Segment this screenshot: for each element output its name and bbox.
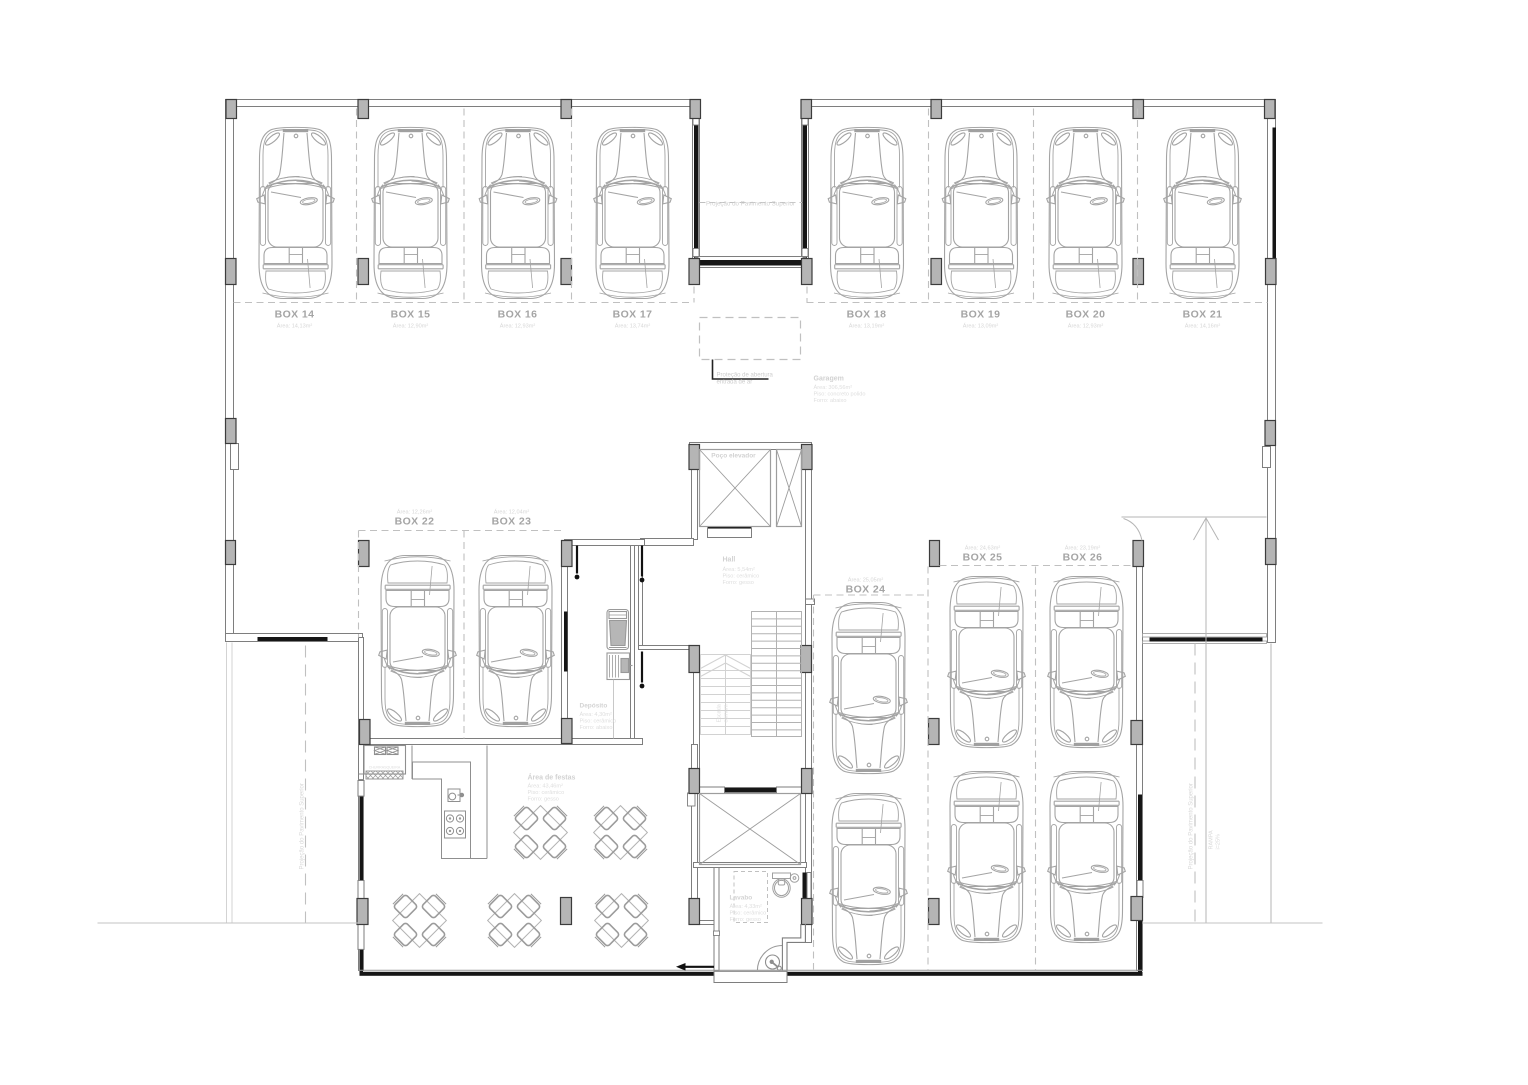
svg-text:Área: 14,16m²: Área: 14,16m² (1185, 323, 1221, 330)
svg-text:Garagem: Garagem (814, 376, 844, 383)
svg-text:Piso: cerâmico: Piso: cerâmico (730, 911, 767, 917)
svg-text:Área: 4,33m²: Área: 4,33m² (730, 903, 762, 910)
svg-text:BOX 19: BOX 19 (961, 309, 1001, 321)
svg-text:Proteção de abertura: Proteção de abertura (717, 373, 774, 379)
svg-text:Piso: cerâmico: Piso: cerâmico (723, 574, 760, 580)
svg-text:BOX 14: BOX 14 (275, 309, 315, 321)
svg-text:BOX 22: BOX 22 (395, 516, 435, 528)
svg-text:Forro: gesso: Forro: gesso (730, 917, 761, 923)
svg-text:Projeção do Pavimento Superior: Projeção do Pavimento Superior (1189, 783, 1195, 869)
svg-text:Área: 12,04m²: Área: 12,04m² (494, 509, 530, 516)
svg-text:Poço elevador: Poço elevador (711, 453, 756, 460)
svg-text:BOX 17: BOX 17 (613, 309, 653, 321)
svg-text:Forro: gesso: Forro: gesso (723, 580, 754, 586)
svg-text:Área de festas: Área de festas (528, 773, 576, 782)
svg-text:BOX 20: BOX 20 (1066, 309, 1106, 321)
svg-text:RAMPA: RAMPA (1209, 830, 1215, 849)
svg-text:Área: 13,74m²: Área: 13,74m² (615, 323, 651, 330)
svg-text:BOX 18: BOX 18 (847, 309, 887, 321)
svg-text:Área: 5,54m²: Área: 5,54m² (723, 566, 755, 573)
svg-text:Área: 4,30m²: Área: 4,30m² (580, 711, 612, 718)
svg-text:Área: 43,46m²: Área: 43,46m² (528, 783, 564, 790)
svg-text:Área: 12,90m²: Área: 12,90m² (393, 323, 429, 330)
svg-text:Piso: concreto polido: Piso: concreto polido (814, 392, 866, 398)
svg-text:Área: 25,05m²: Área: 25,05m² (848, 577, 884, 584)
svg-text:BOX 15: BOX 15 (391, 309, 431, 321)
svg-text:Forro: abaixo: Forro: abaixo (814, 398, 847, 404)
svg-text:Lavabo: Lavabo (730, 895, 753, 902)
svg-text:Depósito: Depósito (580, 703, 608, 710)
svg-text:Projeção do Pavimento Superior: Projeção do Pavimento Superior (300, 783, 306, 869)
svg-text:Forro: gesso: Forro: gesso (528, 797, 559, 803)
svg-text:Área: 12,93m²: Área: 12,93m² (500, 323, 536, 330)
svg-text:BOX 26: BOX 26 (1063, 552, 1103, 564)
svg-text:Projeção do Pavimento Superior: Projeção do Pavimento Superior (706, 201, 795, 208)
svg-text:Piso: cerâmico: Piso: cerâmico (580, 719, 617, 725)
svg-text:Escada: Escada (717, 703, 723, 722)
svg-text:Área: 24,63m²: Área: 24,63m² (965, 545, 1001, 552)
svg-text:BOX 24: BOX 24 (846, 584, 886, 596)
svg-text:i=25%: i=25% (1216, 834, 1222, 850)
svg-text:entrada de ar: entrada de ar (717, 380, 753, 386)
svg-text:Forro: abaixo: Forro: abaixo (580, 725, 613, 731)
svg-text:comum: comum (724, 704, 730, 722)
svg-text:CHURRASQUEIRA: CHURRASQUEIRA (369, 766, 401, 770)
svg-text:BOX 21: BOX 21 (1183, 309, 1223, 321)
svg-text:Área: 14,13m²: Área: 14,13m² (277, 323, 313, 330)
svg-text:Área: 13,09m²: Área: 13,09m² (963, 323, 999, 330)
svg-text:Área: 13,19m²: Área: 13,19m² (849, 323, 885, 330)
svg-text:Área: 306,56m²: Área: 306,56m² (814, 384, 853, 391)
svg-text:Área: 12,93m²: Área: 12,93m² (1068, 323, 1104, 330)
svg-text:BOX 16: BOX 16 (498, 309, 538, 321)
svg-text:Piso: cerâmico: Piso: cerâmico (528, 790, 565, 796)
svg-text:Hall: Hall (723, 557, 736, 564)
svg-text:Área: 23,19m²: Área: 23,19m² (1065, 545, 1101, 552)
svg-text:BOX 23: BOX 23 (492, 516, 532, 528)
svg-text:BOX 25: BOX 25 (963, 552, 1003, 564)
svg-text:Área: 12,26m²: Área: 12,26m² (397, 509, 433, 516)
